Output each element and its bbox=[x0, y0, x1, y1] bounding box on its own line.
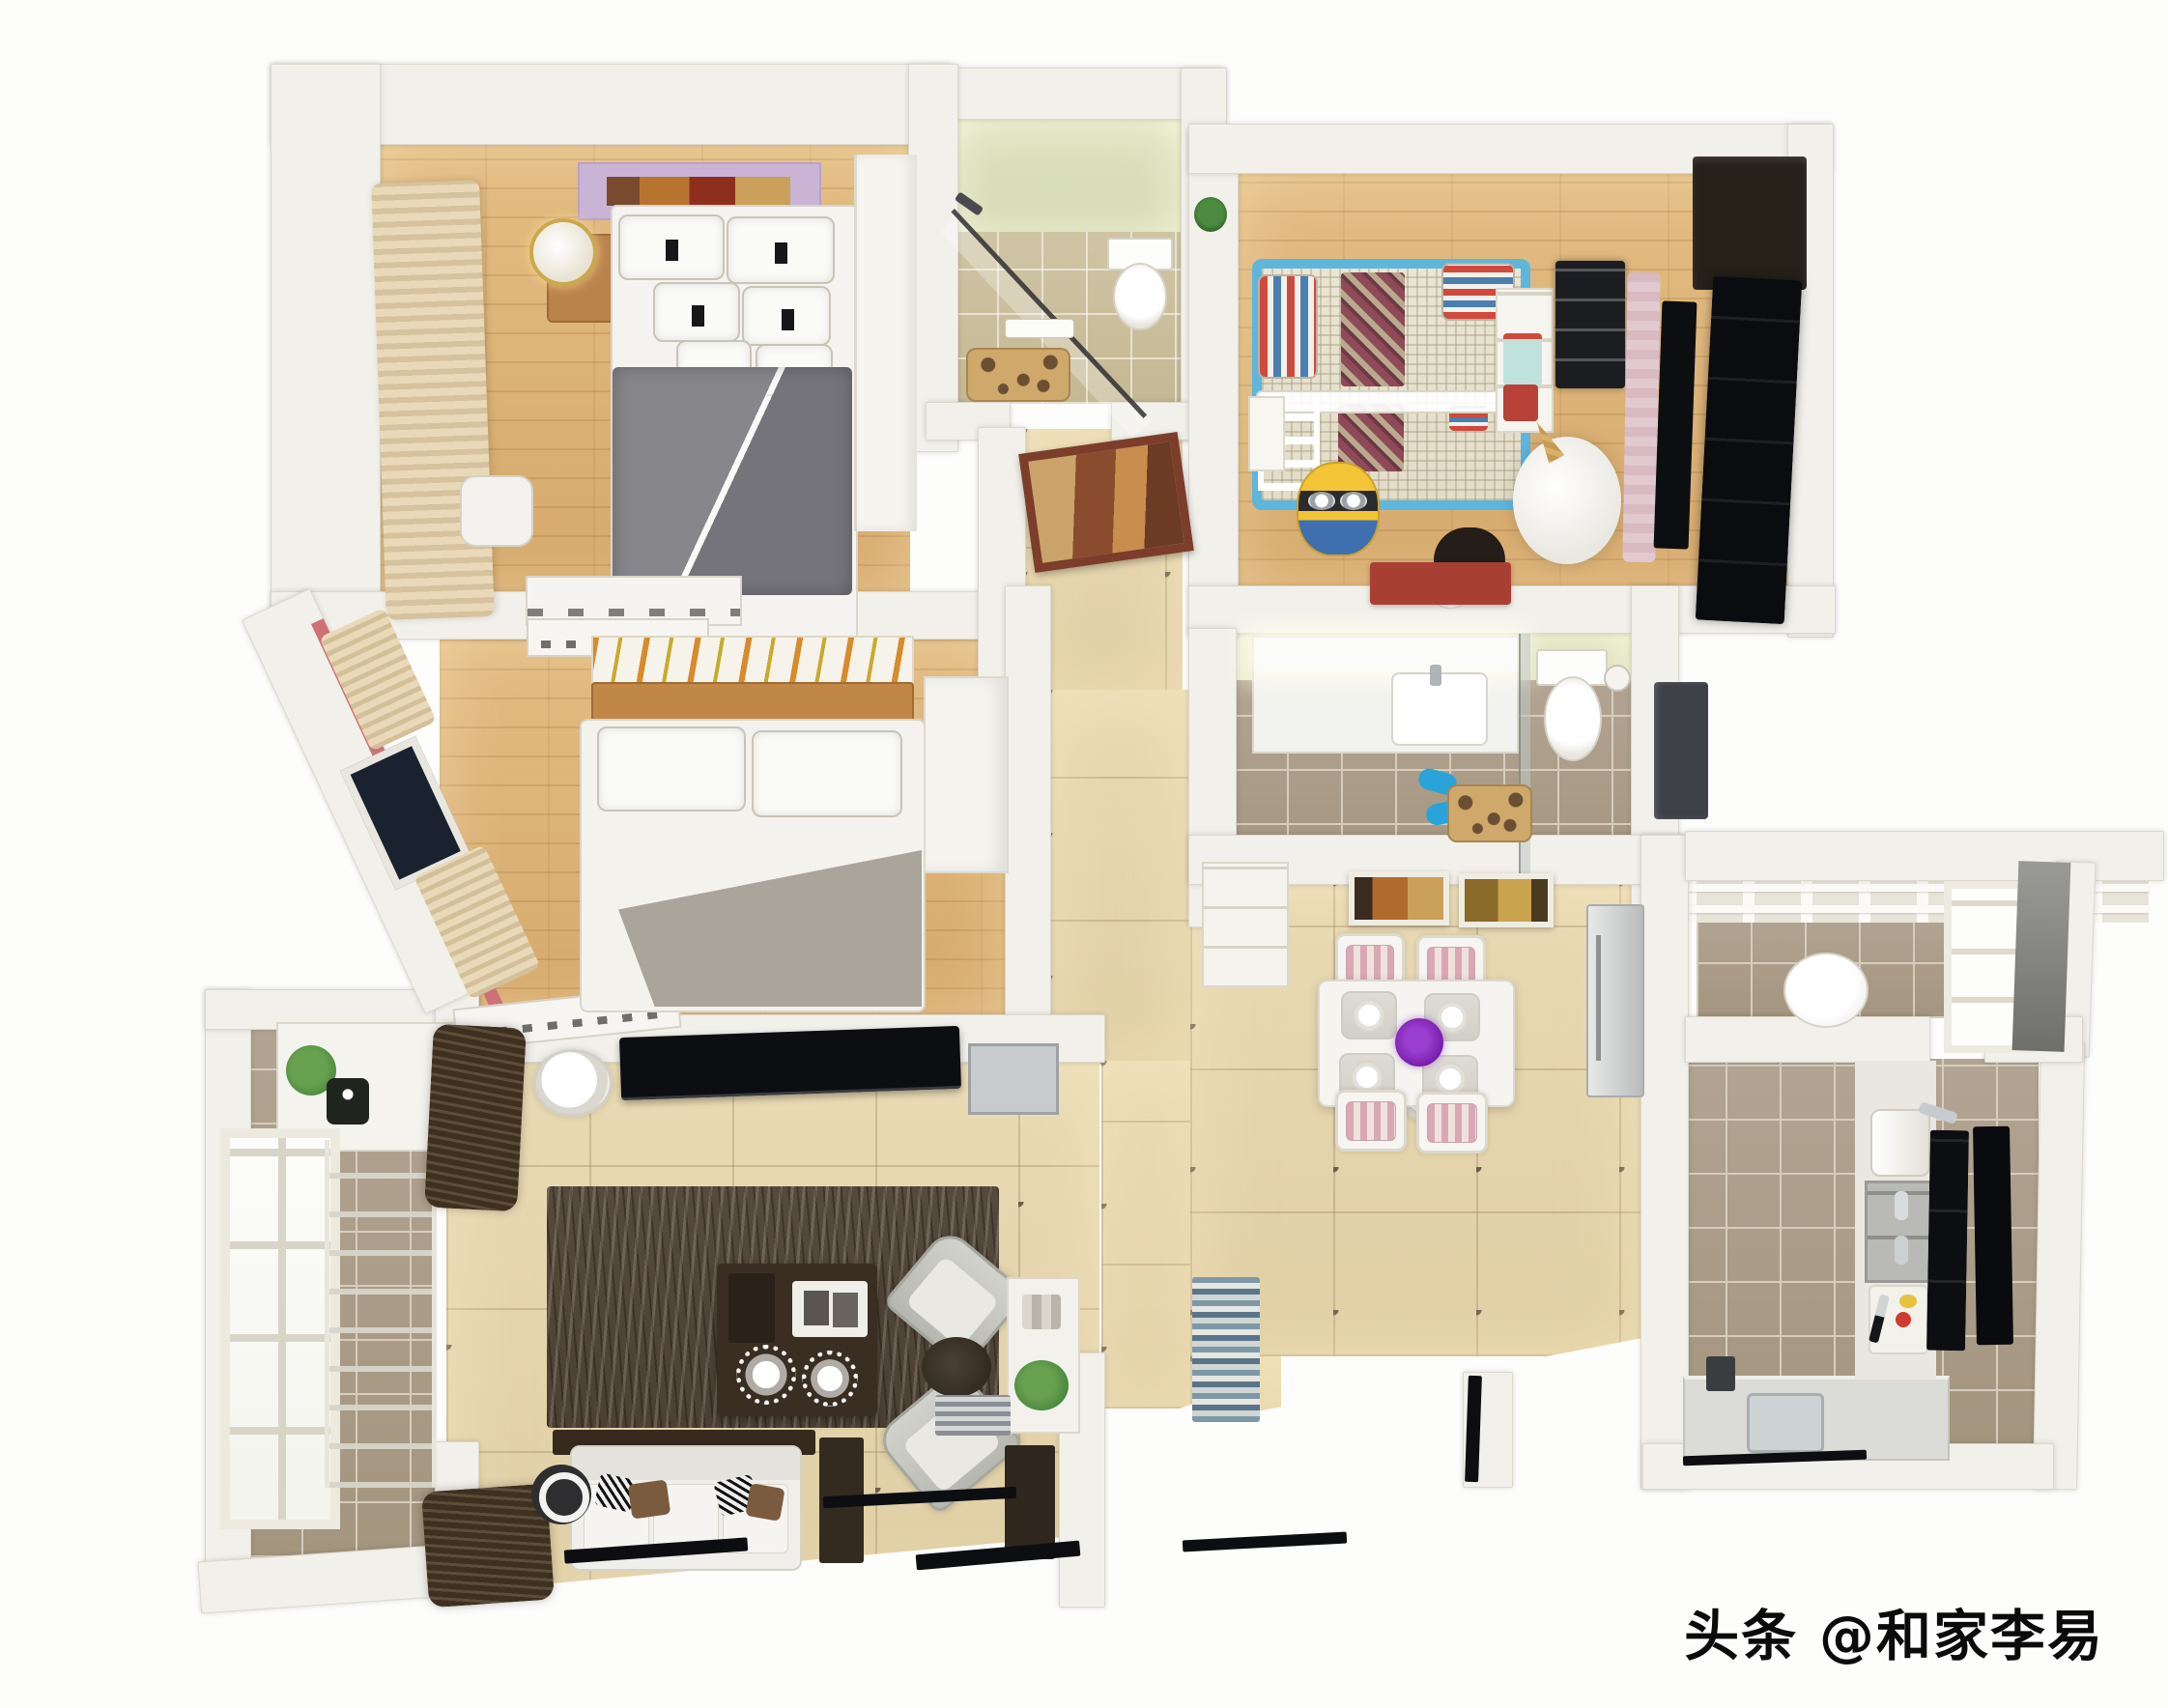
o-table-ring bbox=[539, 1472, 589, 1523]
closet-black-tv-panel bbox=[1696, 276, 1803, 624]
teal-basket bbox=[1503, 333, 1542, 385]
dining-chair bbox=[1335, 1090, 1407, 1152]
toilet-paper-holder bbox=[1604, 665, 1631, 692]
black-dresser bbox=[1555, 261, 1625, 388]
brown-throw-pillow bbox=[628, 1479, 671, 1519]
minion-goggles bbox=[1298, 491, 1378, 511]
kids-small-cabinet bbox=[1248, 396, 1285, 471]
laundry-flower-pot bbox=[327, 1078, 369, 1124]
bathroom1-wall-band bbox=[953, 114, 1183, 236]
bunk-striped-pillow bbox=[1258, 274, 1318, 379]
wall-dining-right bbox=[1640, 835, 1689, 1490]
unicorn-plush bbox=[1513, 437, 1621, 564]
master-chair bbox=[460, 475, 533, 547]
console-candles bbox=[1022, 1295, 1061, 1329]
coffee-table-tray bbox=[792, 1281, 868, 1337]
balcony-gray-wall bbox=[2012, 861, 2071, 1052]
tray-box bbox=[833, 1293, 858, 1327]
bedroom2-pillow bbox=[752, 730, 902, 817]
decor-plate bbox=[802, 1351, 858, 1407]
minion-eye bbox=[1340, 492, 1367, 510]
master-curtain bbox=[371, 180, 495, 620]
dining-chair bbox=[1416, 1092, 1488, 1153]
kitchen-black-panel bbox=[1973, 1126, 2013, 1346]
bath1-giraffe-mat bbox=[966, 348, 1070, 402]
kitchen-dark-appliance bbox=[1706, 1356, 1735, 1391]
master-pillow bbox=[618, 214, 725, 280]
paper-towel-holder bbox=[1870, 1109, 1930, 1177]
sideboard bbox=[1202, 862, 1289, 987]
entry-door-mat bbox=[1192, 1277, 1260, 1422]
living-curtain bbox=[424, 1024, 527, 1212]
wall-master-left bbox=[271, 64, 381, 645]
minion-eye bbox=[1308, 492, 1335, 510]
coffee-table-remotes bbox=[728, 1273, 775, 1343]
wall-picture bbox=[1349, 871, 1449, 925]
master-pillow bbox=[742, 286, 831, 346]
shelf-cylinder bbox=[1895, 1191, 1908, 1220]
pillow-tag bbox=[666, 240, 678, 261]
bath1-plant bbox=[1194, 197, 1227, 232]
tray-box bbox=[804, 1291, 829, 1325]
round-side-table bbox=[922, 1337, 991, 1397]
balcony-stool bbox=[1783, 953, 1868, 1028]
vanity-faucet bbox=[1430, 665, 1441, 686]
fruit-yellow bbox=[1899, 1295, 1917, 1308]
master-pillow bbox=[727, 216, 835, 284]
bath2-toilet-bowl bbox=[1544, 676, 1602, 761]
master-wardrobe bbox=[854, 155, 917, 531]
fridge-handle bbox=[1596, 935, 1601, 1061]
chair-cushion bbox=[1346, 1101, 1396, 1141]
minion-toy bbox=[1297, 462, 1380, 556]
window-mullion bbox=[278, 1138, 286, 1520]
floor-plan-3d: 头条 @和家李易 bbox=[0, 0, 2168, 1708]
master-pillow bbox=[653, 282, 740, 342]
red-bench bbox=[1370, 562, 1511, 605]
kitchen-shelf-rack bbox=[1865, 1181, 1932, 1283]
cut-mark bbox=[1183, 1532, 1347, 1552]
vanity-mirror-lights bbox=[1254, 638, 1517, 670]
bedroom2-wardrobe bbox=[924, 676, 1009, 873]
utility-cabinet bbox=[1654, 682, 1708, 819]
corridor-floor bbox=[1047, 690, 1190, 1065]
watermark: 头条 @和家李易 bbox=[1684, 1592, 2104, 1671]
laundry-window bbox=[220, 1128, 340, 1529]
threshold-mat bbox=[935, 1395, 1011, 1436]
pillow-tag bbox=[692, 305, 704, 327]
media-console bbox=[968, 1043, 1059, 1115]
bedroom2-pillow bbox=[597, 726, 746, 811]
console-table bbox=[1007, 1277, 1080, 1434]
bath1-towel bbox=[1005, 319, 1074, 338]
brown-throw-pillow bbox=[745, 1483, 784, 1522]
master-gray-blanket bbox=[613, 367, 852, 595]
chair-cushion bbox=[1427, 1103, 1477, 1143]
knife-icon bbox=[1868, 1295, 1890, 1344]
pillow-tag bbox=[782, 309, 794, 330]
pillow-tag bbox=[775, 242, 787, 264]
purple-flower-centerpiece bbox=[1395, 1018, 1443, 1067]
bedroom2-art-banner bbox=[591, 636, 914, 684]
decor-plate bbox=[736, 1345, 796, 1405]
o-side-table bbox=[531, 1465, 591, 1524]
kitchen-black-panel bbox=[1926, 1130, 1969, 1352]
wall-picture bbox=[1459, 873, 1554, 927]
bunk-blanket-chevron bbox=[1338, 404, 1404, 471]
kitchen-sink bbox=[1747, 1393, 1824, 1453]
bunk-blanket-chevron bbox=[1341, 272, 1405, 386]
tv-panel bbox=[619, 1026, 961, 1100]
master-gold-lamp bbox=[529, 218, 597, 286]
place-setting bbox=[1341, 991, 1397, 1039]
chair-cushion bbox=[1346, 945, 1394, 982]
shelf-cylinder bbox=[1895, 1236, 1908, 1265]
wall-kitchen-right bbox=[2033, 1043, 2085, 1491]
hall-painting bbox=[1018, 432, 1194, 573]
drying-rack bbox=[325, 1140, 437, 1488]
fridge bbox=[1586, 904, 1644, 1097]
bath2-giraffe-mat bbox=[1447, 784, 1532, 842]
ceiling-speaker-disc bbox=[533, 1049, 613, 1117]
fruit-red bbox=[1896, 1312, 1911, 1327]
cutting-board bbox=[1868, 1285, 1928, 1354]
red-basket bbox=[1503, 384, 1538, 421]
master-art-picture bbox=[607, 177, 790, 206]
closet-brown-cabinet bbox=[1693, 157, 1807, 290]
entry-floor bbox=[1101, 1061, 1192, 1409]
wall-bedroom2-right bbox=[1005, 585, 1051, 1070]
console-plant bbox=[1014, 1360, 1069, 1410]
bath1-toilet-bowl bbox=[1113, 263, 1167, 330]
vanity-counter bbox=[1252, 636, 1519, 754]
dark-cabinet bbox=[1005, 1445, 1055, 1559]
